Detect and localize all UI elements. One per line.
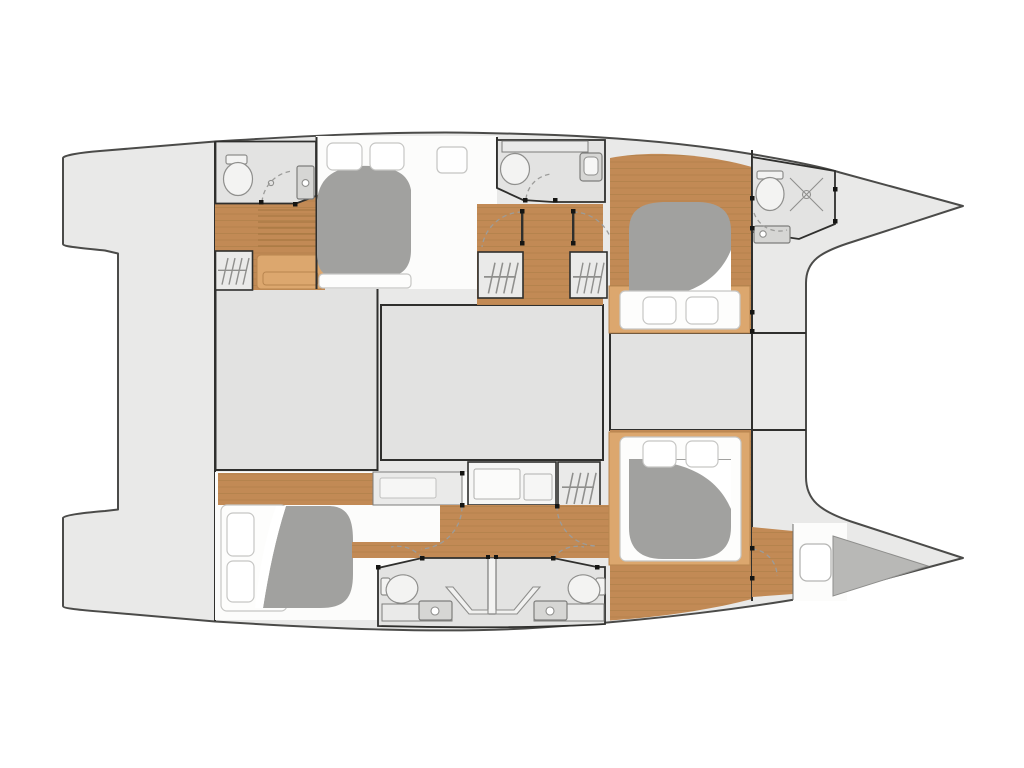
sink-basin [584,157,598,175]
stbd-aft-cabin-bed [221,505,353,611]
port-corridor [477,204,613,305]
pillow [643,441,676,467]
stbd-aft-cabin-headboard-shelf-floor [218,473,373,505]
saloon-block-left [216,288,378,470]
catamaran-floorplan [0,0,1024,768]
pillow [643,297,676,324]
port-bow-bathroom [752,157,835,243]
floorplan-stage [0,0,1024,768]
stbd-wardrobe [558,462,600,510]
toilet-icon [224,163,253,196]
stbd-forward-cabin [609,430,752,621]
pillow [686,297,718,324]
sink-faucet-icon [431,607,439,615]
mattress [620,291,740,329]
sink-faucet-icon [760,231,766,237]
port-aft-bathroom [216,142,317,204]
duvet [317,166,411,278]
saloon-block-middle [381,305,603,460]
door-leaf [521,210,523,244]
mattress-foot [319,274,411,288]
side-unit-top [380,478,436,498]
pillow [227,561,254,602]
bathroom-divider-wall [488,558,496,614]
sink-faucet-icon [546,607,554,615]
port-forward-cabin [609,150,752,333]
port-mid-bathroom [497,137,605,202]
sink-faucet-icon [302,180,309,187]
stbd-vanity-desk [468,462,556,505]
door-leaf [572,210,574,244]
saloon-block-right [610,333,752,430]
pillow [686,441,718,467]
hull-window [437,147,467,173]
stbd-aft-side-unit [373,472,462,505]
port-aft-wardrobe [216,251,253,290]
toilet-icon [756,178,784,211]
pillow [327,143,362,170]
desk-top [474,469,520,499]
forepeak-hatch [800,544,831,581]
vanity-counter [502,141,588,152]
port-wardrobe-right [570,252,607,298]
stbd-forepeak [752,523,928,601]
pillow [227,513,254,556]
port-wardrobe-left [478,252,523,298]
pillow [370,143,404,170]
toilet-icon [501,154,530,185]
